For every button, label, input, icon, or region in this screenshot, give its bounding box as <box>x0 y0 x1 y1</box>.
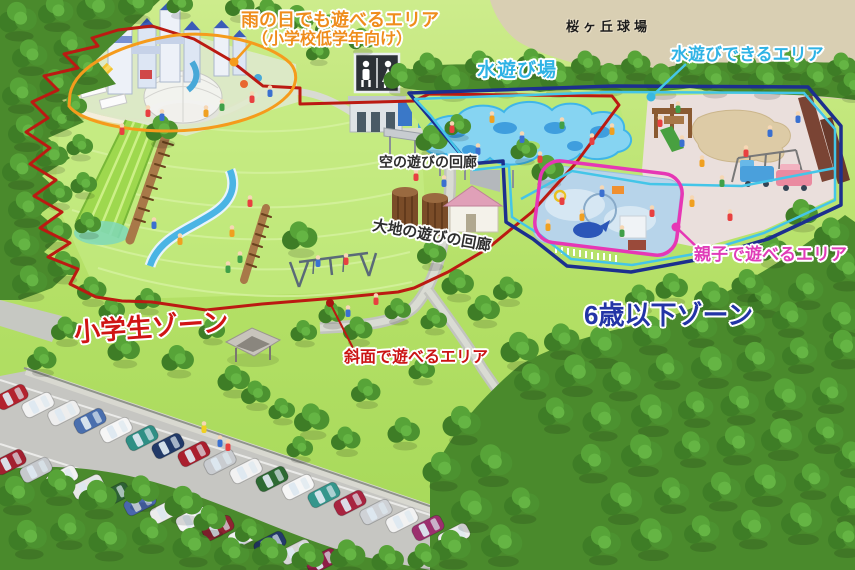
rainy-area-label-line1: 雨の日でも遊べるエリア <box>241 11 439 30</box>
water-playground-label: 水遊び場 <box>477 61 557 81</box>
sky-play-corridor-label: 空の遊びの回廊 <box>379 155 477 170</box>
rainy-area-label-line2: （小学校低学年向け） <box>252 32 412 49</box>
water-play-area-label: 水遊びできるエリア <box>671 46 824 64</box>
park-map-illustration: 雨の日でも遊べるエリア （小学校低学年向け） 桜ヶ丘球場 水遊び場 水遊びできる… <box>0 0 855 570</box>
parent-child-area-label: 親子で遊べるエリア <box>694 246 847 264</box>
dolphin-toy <box>573 222 603 238</box>
under-six-zone-label: 6歳以下ゾーン <box>584 302 753 329</box>
ballpark-label: 桜ヶ丘球場 <box>566 20 651 34</box>
map-canvas <box>0 0 855 570</box>
slope-play-area-label: 斜面で遊べるエリア <box>344 350 488 367</box>
